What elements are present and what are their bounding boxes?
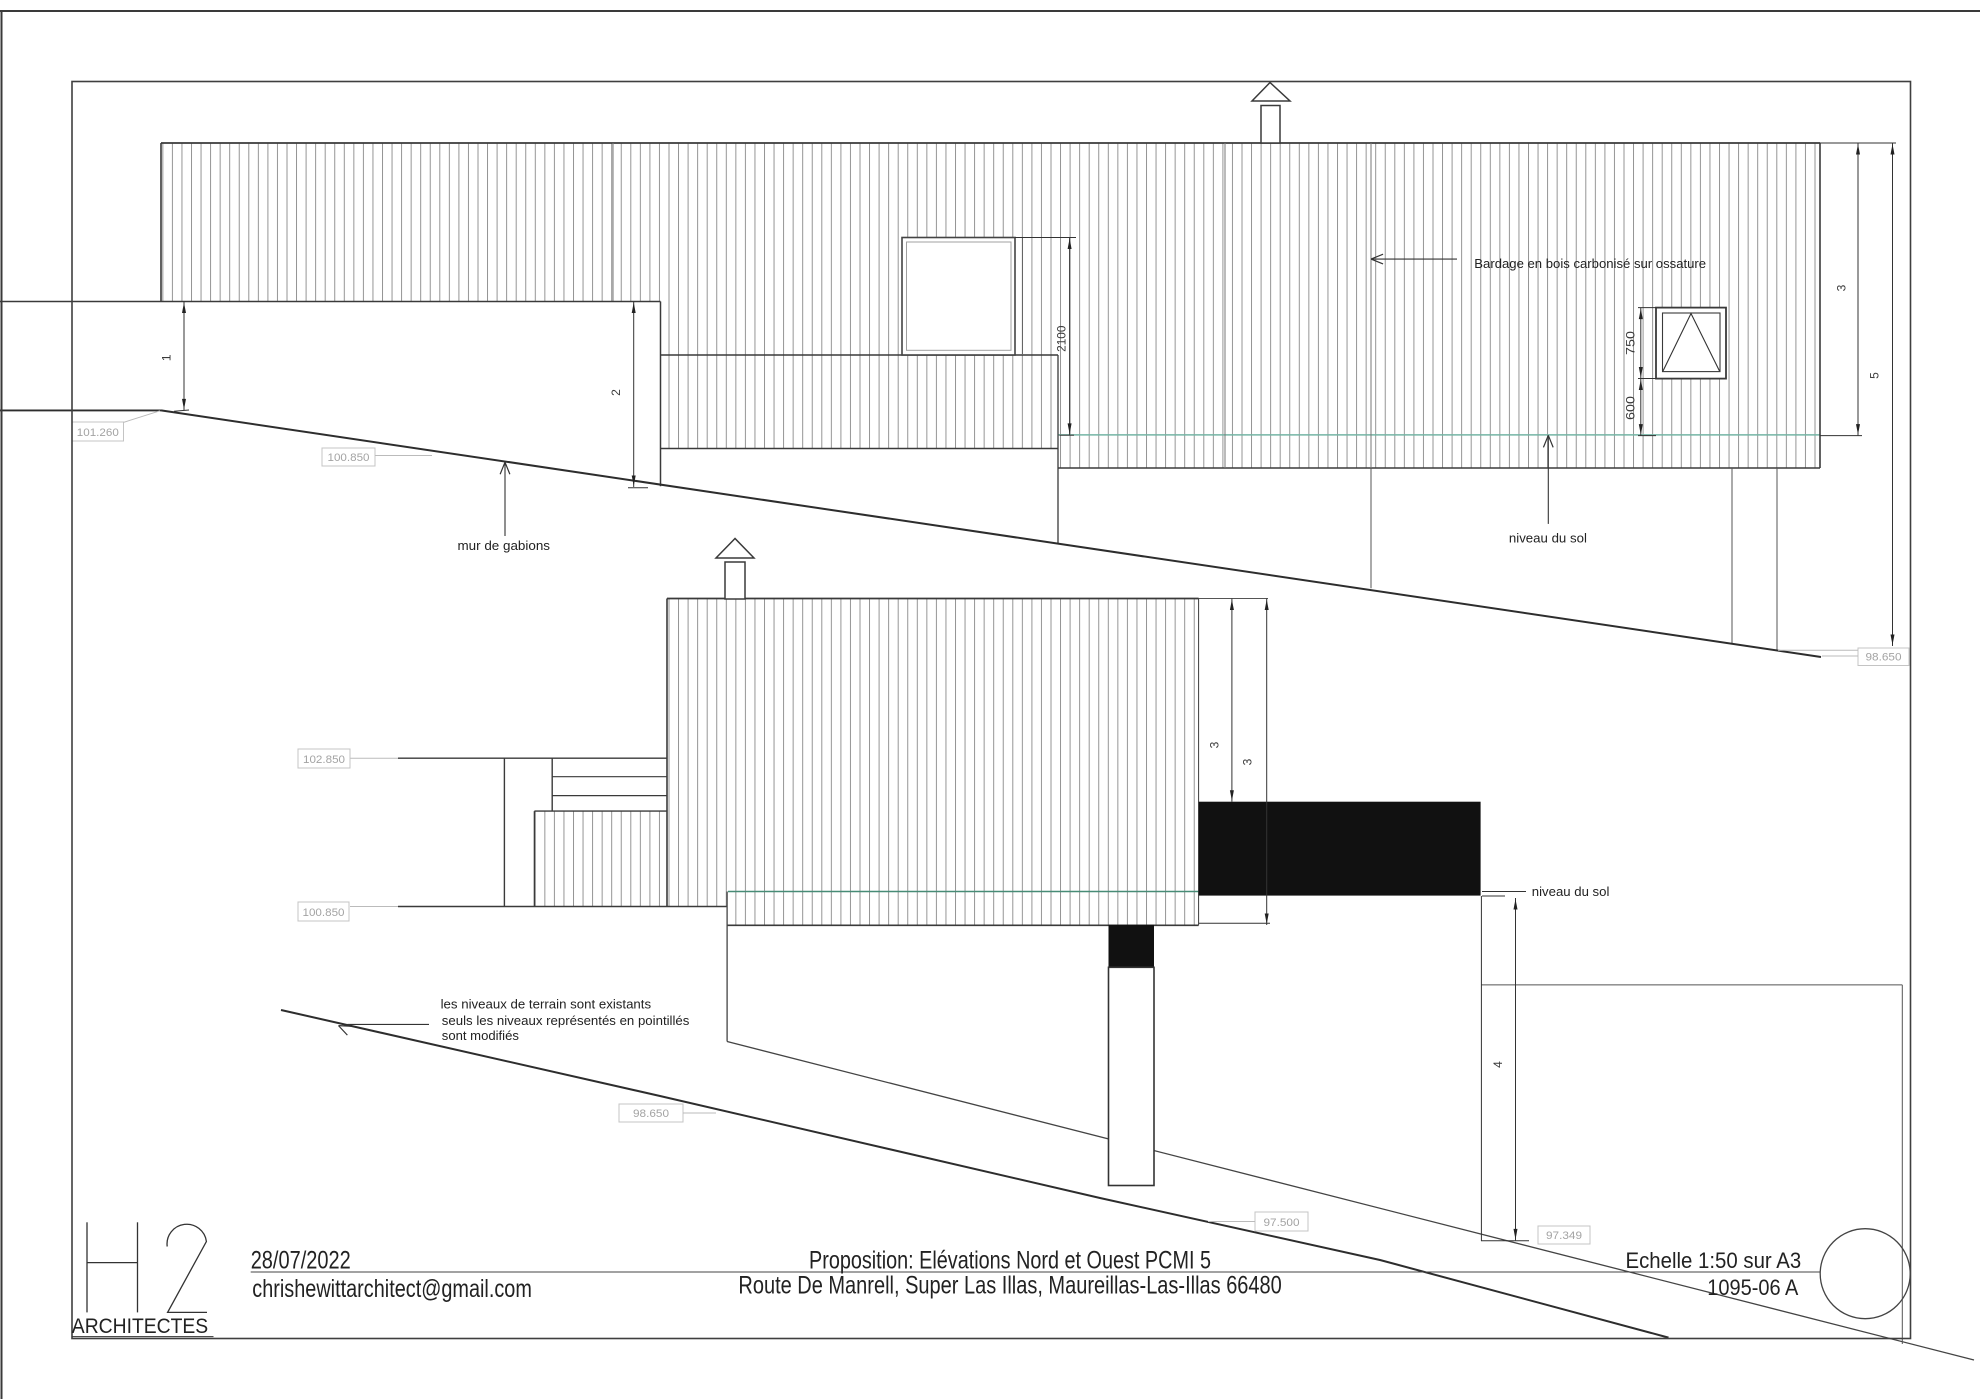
svg-text:sont modifiés: sont modifiés: [442, 1029, 519, 1043]
svg-text:niveau du sol: niveau du sol: [1532, 885, 1610, 899]
svg-text:5: 5: [1868, 372, 1882, 379]
svg-text:1095-06 A: 1095-06 A: [1707, 1275, 1798, 1300]
svg-text:102.850: 102.850: [303, 754, 345, 766]
svg-text:Route De Manrell, Super Las Il: Route De Manrell, Super Las Illas, Maure…: [738, 1272, 1281, 1300]
svg-text:600: 600: [1624, 396, 1638, 420]
svg-text:Echelle 1:50 sur A3: Echelle 1:50 sur A3: [1626, 1248, 1802, 1273]
svg-text:97.349: 97.349: [1546, 1230, 1582, 1242]
svg-text:les niveaux de terrain sont ex: les niveaux de terrain sont existants: [441, 998, 651, 1012]
svg-text:98.650: 98.650: [633, 1108, 669, 1120]
svg-text:98.650: 98.650: [1866, 652, 1902, 664]
svg-text:niveau du sol: niveau du sol: [1509, 532, 1587, 546]
svg-text:3: 3: [1208, 741, 1222, 748]
svg-text:2100: 2100: [1055, 325, 1069, 352]
svg-text:mur de gabions: mur de gabions: [458, 539, 551, 553]
svg-text:97.500: 97.500: [1264, 1217, 1300, 1229]
svg-text:1: 1: [159, 354, 173, 361]
svg-text:3: 3: [1241, 758, 1255, 765]
svg-text:Bardage en bois carbonisé sur: Bardage en bois carbonisé sur ossature: [1474, 257, 1706, 271]
svg-text:100.850: 100.850: [303, 907, 345, 919]
svg-text:ARCHITECTES: ARCHITECTES: [72, 1315, 208, 1338]
svg-text:4: 4: [1491, 1061, 1505, 1068]
svg-text:3: 3: [1835, 284, 1849, 291]
svg-text:Proposition: Elévations Nord e: Proposition: Elévations Nord et Ouest PC…: [809, 1247, 1211, 1275]
svg-text:100.850: 100.850: [328, 452, 370, 464]
svg-text:2: 2: [609, 389, 623, 396]
svg-text:101.260: 101.260: [77, 427, 119, 439]
svg-text:chrishewittarchitect@gmail.com: chrishewittarchitect@gmail.com: [252, 1275, 532, 1303]
svg-text:750: 750: [1624, 331, 1638, 355]
svg-text:seuls les niveaux représentés: seuls les niveaux représentés en pointil…: [442, 1014, 690, 1028]
svg-text:28/07/2022: 28/07/2022: [251, 1247, 351, 1275]
